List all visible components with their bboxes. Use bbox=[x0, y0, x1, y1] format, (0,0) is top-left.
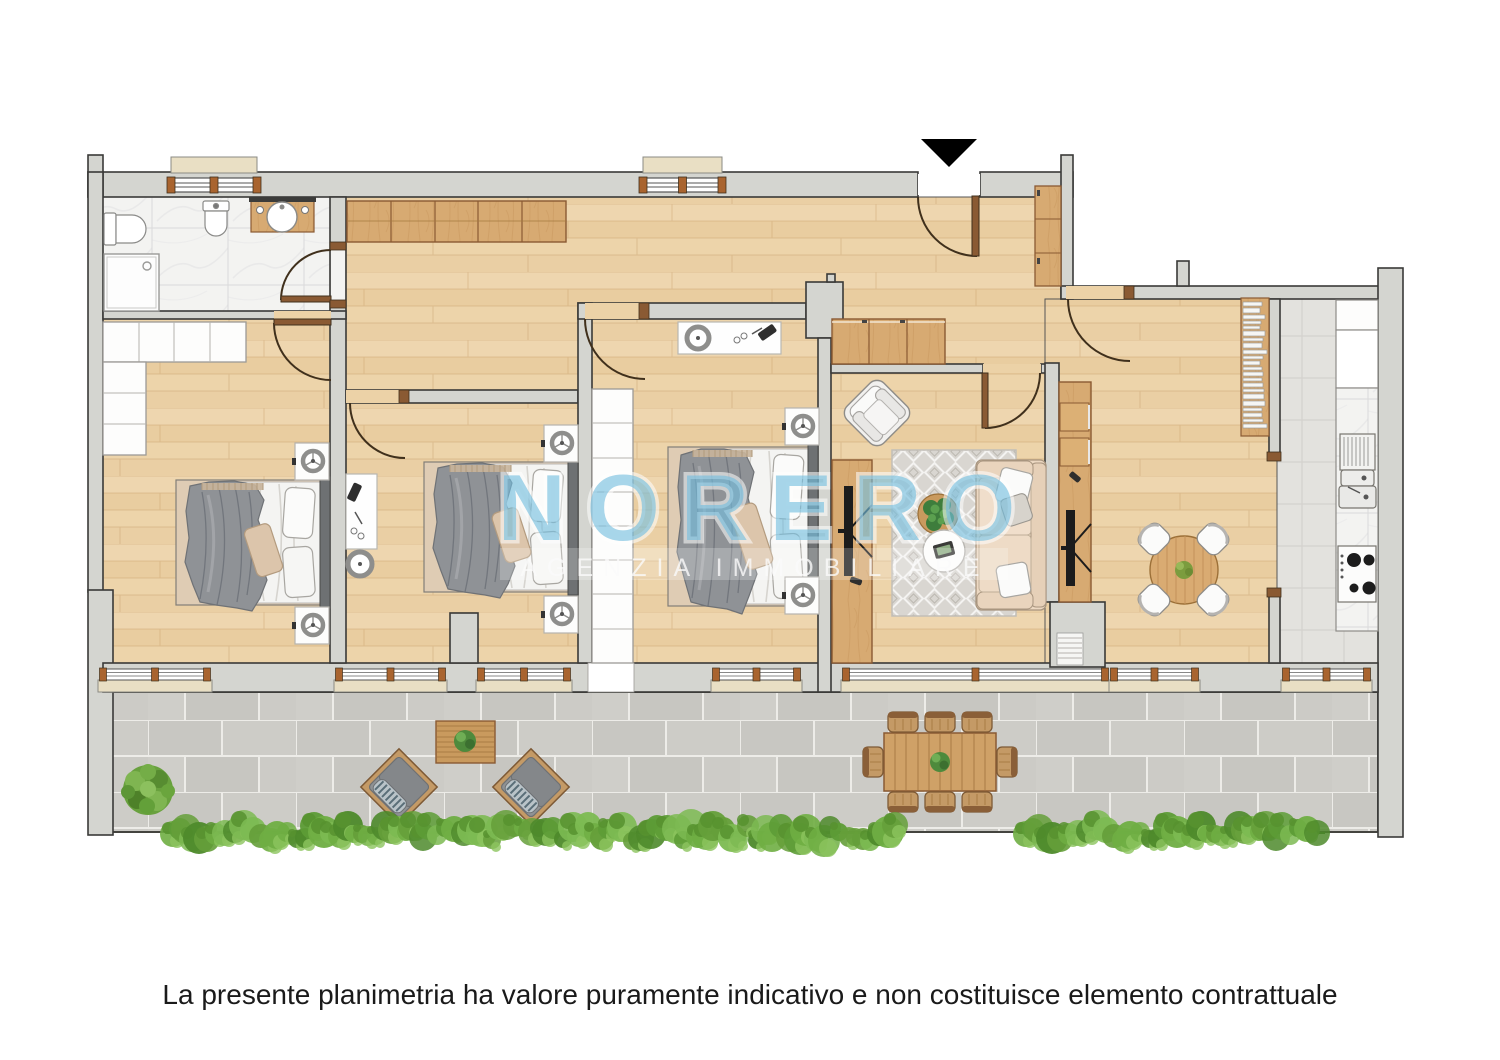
svg-text:AGENZIA IMMOBILIARE: AGENZIA IMMOBILIARE bbox=[520, 554, 989, 582]
svg-text:La presente planimetria ha val: La presente planimetria ha valore purame… bbox=[162, 979, 1337, 1010]
svg-text:NORERO: NORERO bbox=[498, 455, 1037, 560]
